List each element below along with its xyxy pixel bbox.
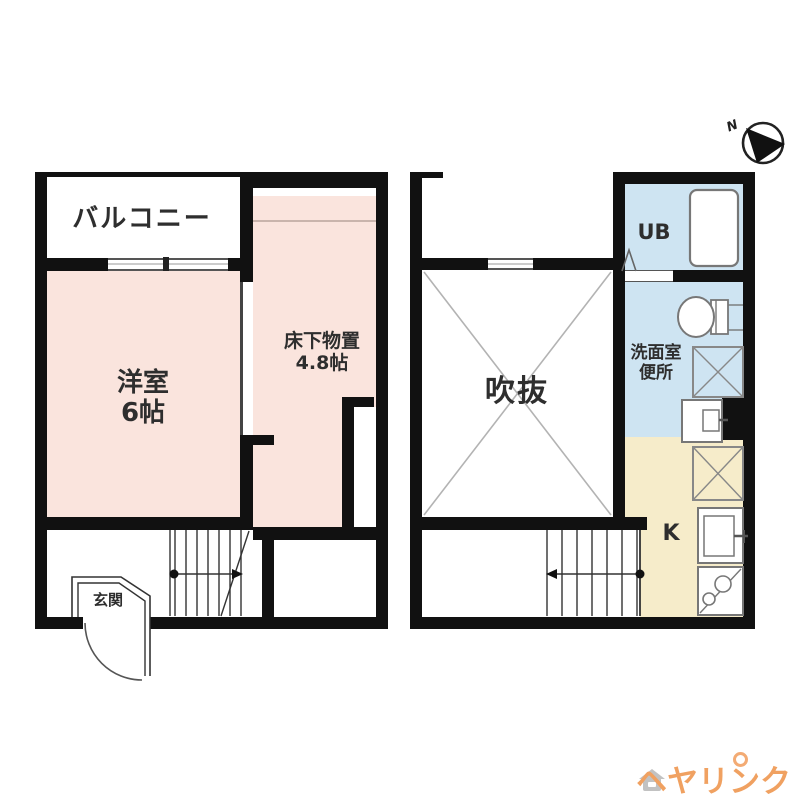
kitchen-label: K [658, 521, 684, 546]
bath-door-mark [622, 250, 636, 271]
storage-label: 床下物置 4.8帖 [272, 331, 372, 375]
washer-pan-icon [693, 347, 743, 397]
entrance-label: 玄関 [86, 592, 130, 609]
bedroom-label-line2: 6帖 [73, 399, 213, 429]
stairs-left [170, 530, 250, 616]
fridge-pan-icon [693, 447, 743, 500]
storage-label-line2: 4.8帖 [272, 353, 372, 375]
unit-bath-label: UB [634, 220, 674, 244]
washroom-label-line2: 便所 [621, 364, 691, 384]
logo-ring-icon [733, 752, 748, 767]
brand-text: ヘヤリンク [636, 756, 791, 800]
washroom-label-line1: 洗面室 [621, 344, 691, 364]
window-mullion [108, 257, 533, 271]
toilet-icon [678, 297, 743, 337]
entry-door-arc [85, 623, 142, 680]
stairs-right [546, 530, 645, 616]
bedroom-label-line1: 洋室 [73, 369, 213, 399]
washbasin-icon [682, 400, 728, 442]
floorplan-canvas: バルコニー 洋室 6帖 床下物置 4.8帖 玄関 吹抜 UB 洗面室 便所 K … [0, 0, 800, 800]
balcony-label: バルコニー [58, 205, 226, 235]
bathtub-icon [690, 190, 738, 266]
bedroom-label: 洋室 6帖 [73, 369, 213, 429]
void-label: 吹抜 [460, 375, 574, 410]
washroom-label: 洗面室 便所 [621, 344, 691, 383]
storage-label-line1: 床下物置 [272, 331, 372, 353]
compass-icon [743, 123, 785, 163]
kitchen-sink-icon [698, 508, 748, 563]
stove-icon [698, 567, 743, 615]
